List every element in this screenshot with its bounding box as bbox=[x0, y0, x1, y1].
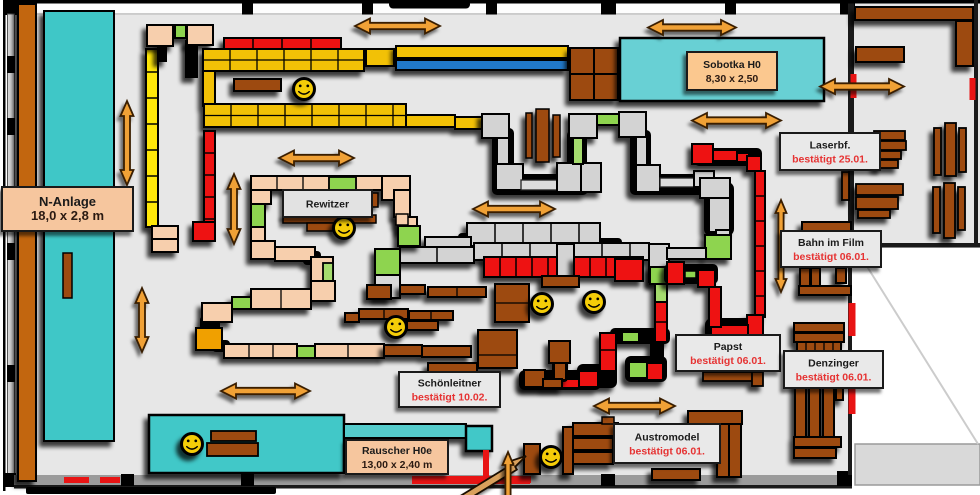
svg-text:8,30 x 2,50: 8,30 x 2,50 bbox=[706, 73, 759, 85]
svg-text:18,0 x 2,8 m: 18,0 x 2,8 m bbox=[31, 208, 104, 223]
svg-text:Bahn im Film: Bahn im Film bbox=[798, 237, 864, 249]
svg-text:Austromodel: Austromodel bbox=[635, 432, 700, 444]
svg-text:N-Anlage: N-Anlage bbox=[39, 194, 96, 209]
svg-text:Denzinger: Denzinger bbox=[808, 358, 859, 370]
svg-text:bestätigt 06.01.: bestätigt 06.01. bbox=[796, 372, 872, 384]
svg-text:bestätigt 06.01.: bestätigt 06.01. bbox=[629, 446, 705, 458]
svg-text:Schönleitner: Schönleitner bbox=[418, 378, 482, 390]
svg-text:bestätigt 10.02.: bestätigt 10.02. bbox=[412, 392, 488, 404]
svg-text:bestätigt 06.01.: bestätigt 06.01. bbox=[690, 355, 766, 367]
svg-text:Rewitzer: Rewitzer bbox=[306, 199, 349, 211]
svg-text:bestätigt 25.01.: bestätigt 25.01. bbox=[792, 154, 868, 166]
svg-text:bestätigt 06.01.: bestätigt 06.01. bbox=[793, 251, 869, 263]
svg-text:Rauscher H0e: Rauscher H0e bbox=[362, 445, 432, 457]
svg-text:Laserbf.: Laserbf. bbox=[810, 140, 851, 152]
svg-text:Sobotka H0: Sobotka H0 bbox=[703, 59, 761, 71]
svg-text:Papst: Papst bbox=[714, 341, 743, 353]
svg-text:13,00 x 2,40 m: 13,00 x 2,40 m bbox=[362, 459, 433, 471]
